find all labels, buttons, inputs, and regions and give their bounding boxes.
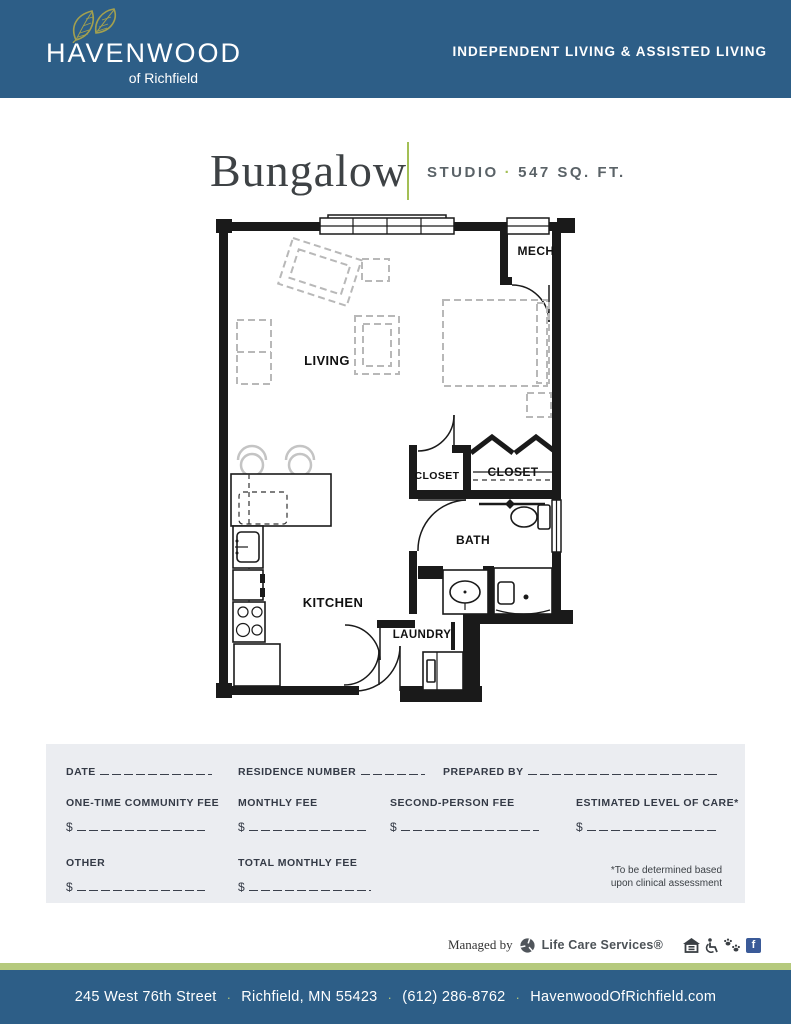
brand-name: HAVENWOOD: [46, 38, 242, 69]
managed-by-row: Managed by Life Care Services®: [448, 934, 761, 956]
second-person-fee-value: $: [390, 818, 539, 836]
residence-number-label: RESIDENCE NUMBER: [238, 766, 356, 778]
prepared-by-label: PREPARED BY: [443, 766, 524, 778]
room-label-living: LIVING: [304, 353, 350, 368]
footer-separator: ·: [378, 990, 403, 1005]
unit-area: 547 SQ. FT.: [518, 164, 626, 181]
floor-plan: MECH LIVING CLOSET CLOSET BATH KITCHEN L…: [197, 208, 595, 713]
havenwood-logo: HAVENWOOD of Richfield: [40, 6, 210, 94]
clinical-assessment-footnote: *To be determined based upon clinical as…: [611, 864, 722, 890]
date-label: DATE: [66, 766, 96, 778]
other-fee-value: $: [66, 878, 205, 896]
footer-accent-stripe: [0, 963, 791, 970]
plan-subtitle: STUDIO·547 SQ. FT.: [427, 164, 626, 181]
pet-friendly-icon: [723, 938, 741, 953]
certification-icons: f: [683, 938, 761, 953]
managed-by-text: Managed by: [448, 937, 513, 953]
unit-type: STUDIO: [427, 164, 499, 181]
fee-blank-line: [587, 820, 719, 831]
fee-blank-line: [249, 880, 371, 891]
fee-blank-line: [249, 820, 369, 831]
header-banner-text: INDEPENDENT LIVING & ASSISTED LIVING: [452, 44, 767, 59]
floor-plan-drawing: MECH LIVING CLOSET CLOSET BATH KITCHEN L…: [197, 208, 595, 713]
total-monthly-fee-label: TOTAL MONTHLY FEE: [238, 857, 357, 869]
room-label-closet-right: CLOSET: [487, 465, 538, 479]
room-label-bath: BATH: [456, 533, 490, 547]
footer-address: 245 West 76th Street: [75, 989, 217, 1005]
estimated-level-of-care-label: ESTIMATED LEVEL OF CARE*: [576, 797, 739, 809]
prepared-by-blank-line: [528, 764, 718, 775]
facebook-icon[interactable]: f: [746, 938, 761, 953]
life-care-services-logo-icon: [519, 937, 536, 954]
prepared-by-field: PREPARED BY: [443, 762, 718, 780]
equal-housing-icon: [683, 938, 700, 953]
wheelchair-accessible-icon: [705, 938, 718, 953]
life-care-services-text: Life Care Services®: [542, 938, 663, 952]
currency-symbol: $: [66, 820, 73, 834]
other-fee-label: OTHER: [66, 857, 105, 869]
date-field: DATE: [66, 762, 212, 780]
total-monthly-fee-value: $: [238, 878, 371, 896]
room-label-closet-left: CLOSET: [415, 470, 460, 482]
room-label-kitchen: KITCHEN: [303, 595, 364, 610]
residence-number-blank-line: [361, 764, 425, 775]
brand-tagline: of Richfield: [40, 70, 198, 86]
footer-separator: ·: [506, 990, 531, 1005]
second-person-fee-label: SECOND-PERSON FEE: [390, 797, 515, 809]
estimated-level-of-care-value: $: [576, 818, 719, 836]
title-divider: [407, 142, 409, 200]
subtitle-separator: ·: [499, 164, 519, 181]
plan-name-title: Bungalow: [210, 144, 407, 197]
flyer-page: HAVENWOOD of Richfield INDEPENDENT LIVIN…: [0, 0, 791, 1024]
currency-symbol: $: [66, 880, 73, 894]
monthly-fee-value: $: [238, 818, 369, 836]
currency-symbol: $: [576, 820, 583, 834]
currency-symbol: $: [238, 880, 245, 894]
residence-number-field: RESIDENCE NUMBER: [238, 762, 425, 780]
footer-city-state: Richfield, MN 55423: [241, 989, 377, 1005]
monthly-fee-label: MONTHLY FEE: [238, 797, 318, 809]
fee-blank-line: [77, 820, 205, 831]
pricing-form: DATE RESIDENCE NUMBER PREPARED BY ONE-TI…: [46, 744, 745, 903]
room-label-mech: MECH: [518, 244, 555, 258]
one-time-community-fee-label: ONE-TIME COMMUNITY FEE: [66, 797, 219, 809]
footer-website[interactable]: HavenwoodOfRichfield.com: [530, 989, 716, 1005]
footnote-line-1: *To be determined based: [611, 864, 722, 877]
footer-phone: (612) 286-8762: [402, 989, 505, 1005]
currency-symbol: $: [238, 820, 245, 834]
fee-blank-line: [77, 880, 205, 891]
currency-symbol: $: [390, 820, 397, 834]
header-band: HAVENWOOD of Richfield INDEPENDENT LIVIN…: [0, 0, 791, 98]
room-label-laundry: LAUNDRY: [393, 629, 452, 641]
date-blank-line: [100, 764, 212, 775]
one-time-community-fee-value: $: [66, 818, 205, 836]
footer-separator: ·: [217, 990, 242, 1005]
fee-blank-line: [401, 820, 539, 831]
footer-band: 245 West 76th Street · Richfield, MN 554…: [0, 970, 791, 1024]
footnote-line-2: upon clinical assessment: [611, 877, 722, 890]
